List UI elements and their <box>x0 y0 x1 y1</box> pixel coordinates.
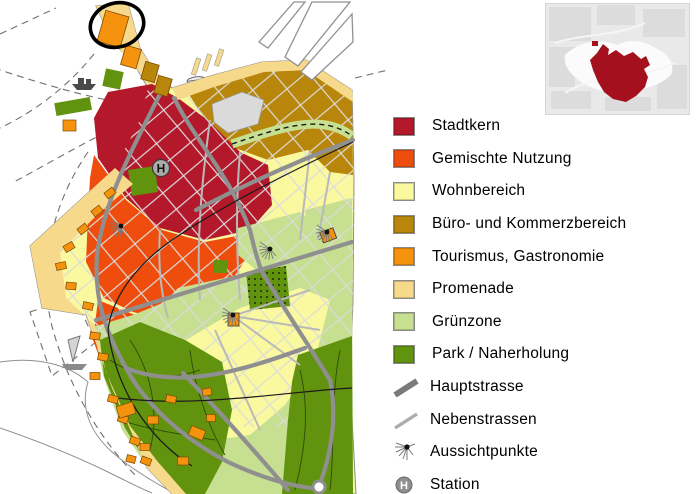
legend-item-aussichtpunkte: Aussichtpunkte <box>393 436 693 469</box>
station-symbol: H <box>153 160 170 177</box>
nebenstrassen-icon <box>393 409 419 431</box>
city-map: H <box>0 0 392 494</box>
legend-item-wohnbereich: Wohnbereich <box>393 175 693 208</box>
legend: Stadtkern Gemischte Nutzung Wohnbereich … <box>393 110 693 494</box>
legend-label: Nebenstrassen <box>430 411 537 429</box>
legend-item-station: H Station <box>393 469 693 494</box>
legend-item-tourismus: Tourismus, Gastronomie <box>393 240 693 273</box>
legend-label: Gemischte Nutzung <box>432 150 572 168</box>
tourismus-swatch <box>393 247 415 266</box>
park-swatch <box>393 345 415 364</box>
legend-label: Tourismus, Gastronomie <box>432 248 604 266</box>
legend-label: Büro- und Kommerzbereich <box>432 215 626 233</box>
aussichtpunkte-icon <box>393 441 419 463</box>
coast-orange-block <box>63 120 76 131</box>
legend-item-gemischte-nutzung: Gemischte Nutzung <box>393 143 693 176</box>
legend-label: Grünzone <box>432 313 502 331</box>
legend-label: Wohnbereich <box>432 182 525 200</box>
legend-item-buero-kommerz: Büro- und Kommerzbereich <box>393 208 693 241</box>
roundabout <box>313 481 325 493</box>
slide-canvas: H Stadtkern Gemischte Nutzung Wohnbereic… <box>0 0 700 494</box>
buero-swatch <box>393 215 415 234</box>
stadtkern-swatch <box>393 117 415 136</box>
legend-item-park: Park / Naherholung <box>393 338 693 371</box>
gruenzone-swatch <box>393 312 415 331</box>
overview-inset-map <box>545 3 690 115</box>
legend-item-promenade: Promenade <box>393 273 693 306</box>
wohnbereich-swatch <box>393 182 415 201</box>
station-icon: H <box>393 474 419 494</box>
legend-label: Station <box>430 476 480 494</box>
legend-label: Stadtkern <box>432 117 500 135</box>
legend-item-hauptstrasse: Hauptstrasse <box>393 371 693 404</box>
svg-text:H: H <box>157 162 166 176</box>
gemischte-swatch <box>393 149 415 168</box>
legend-item-gruenzone: Grünzone <box>393 306 693 339</box>
legend-label: Aussichtpunkte <box>430 443 538 461</box>
promenade-swatch <box>393 280 415 299</box>
legend-label: Park / Naherholung <box>432 345 569 363</box>
svg-text:H: H <box>400 480 408 492</box>
legend-label: Promenade <box>432 280 514 298</box>
hauptstrasse-icon <box>393 376 419 398</box>
legend-label: Hauptstrasse <box>430 378 524 396</box>
legend-item-nebenstrassen: Nebenstrassen <box>393 403 693 436</box>
